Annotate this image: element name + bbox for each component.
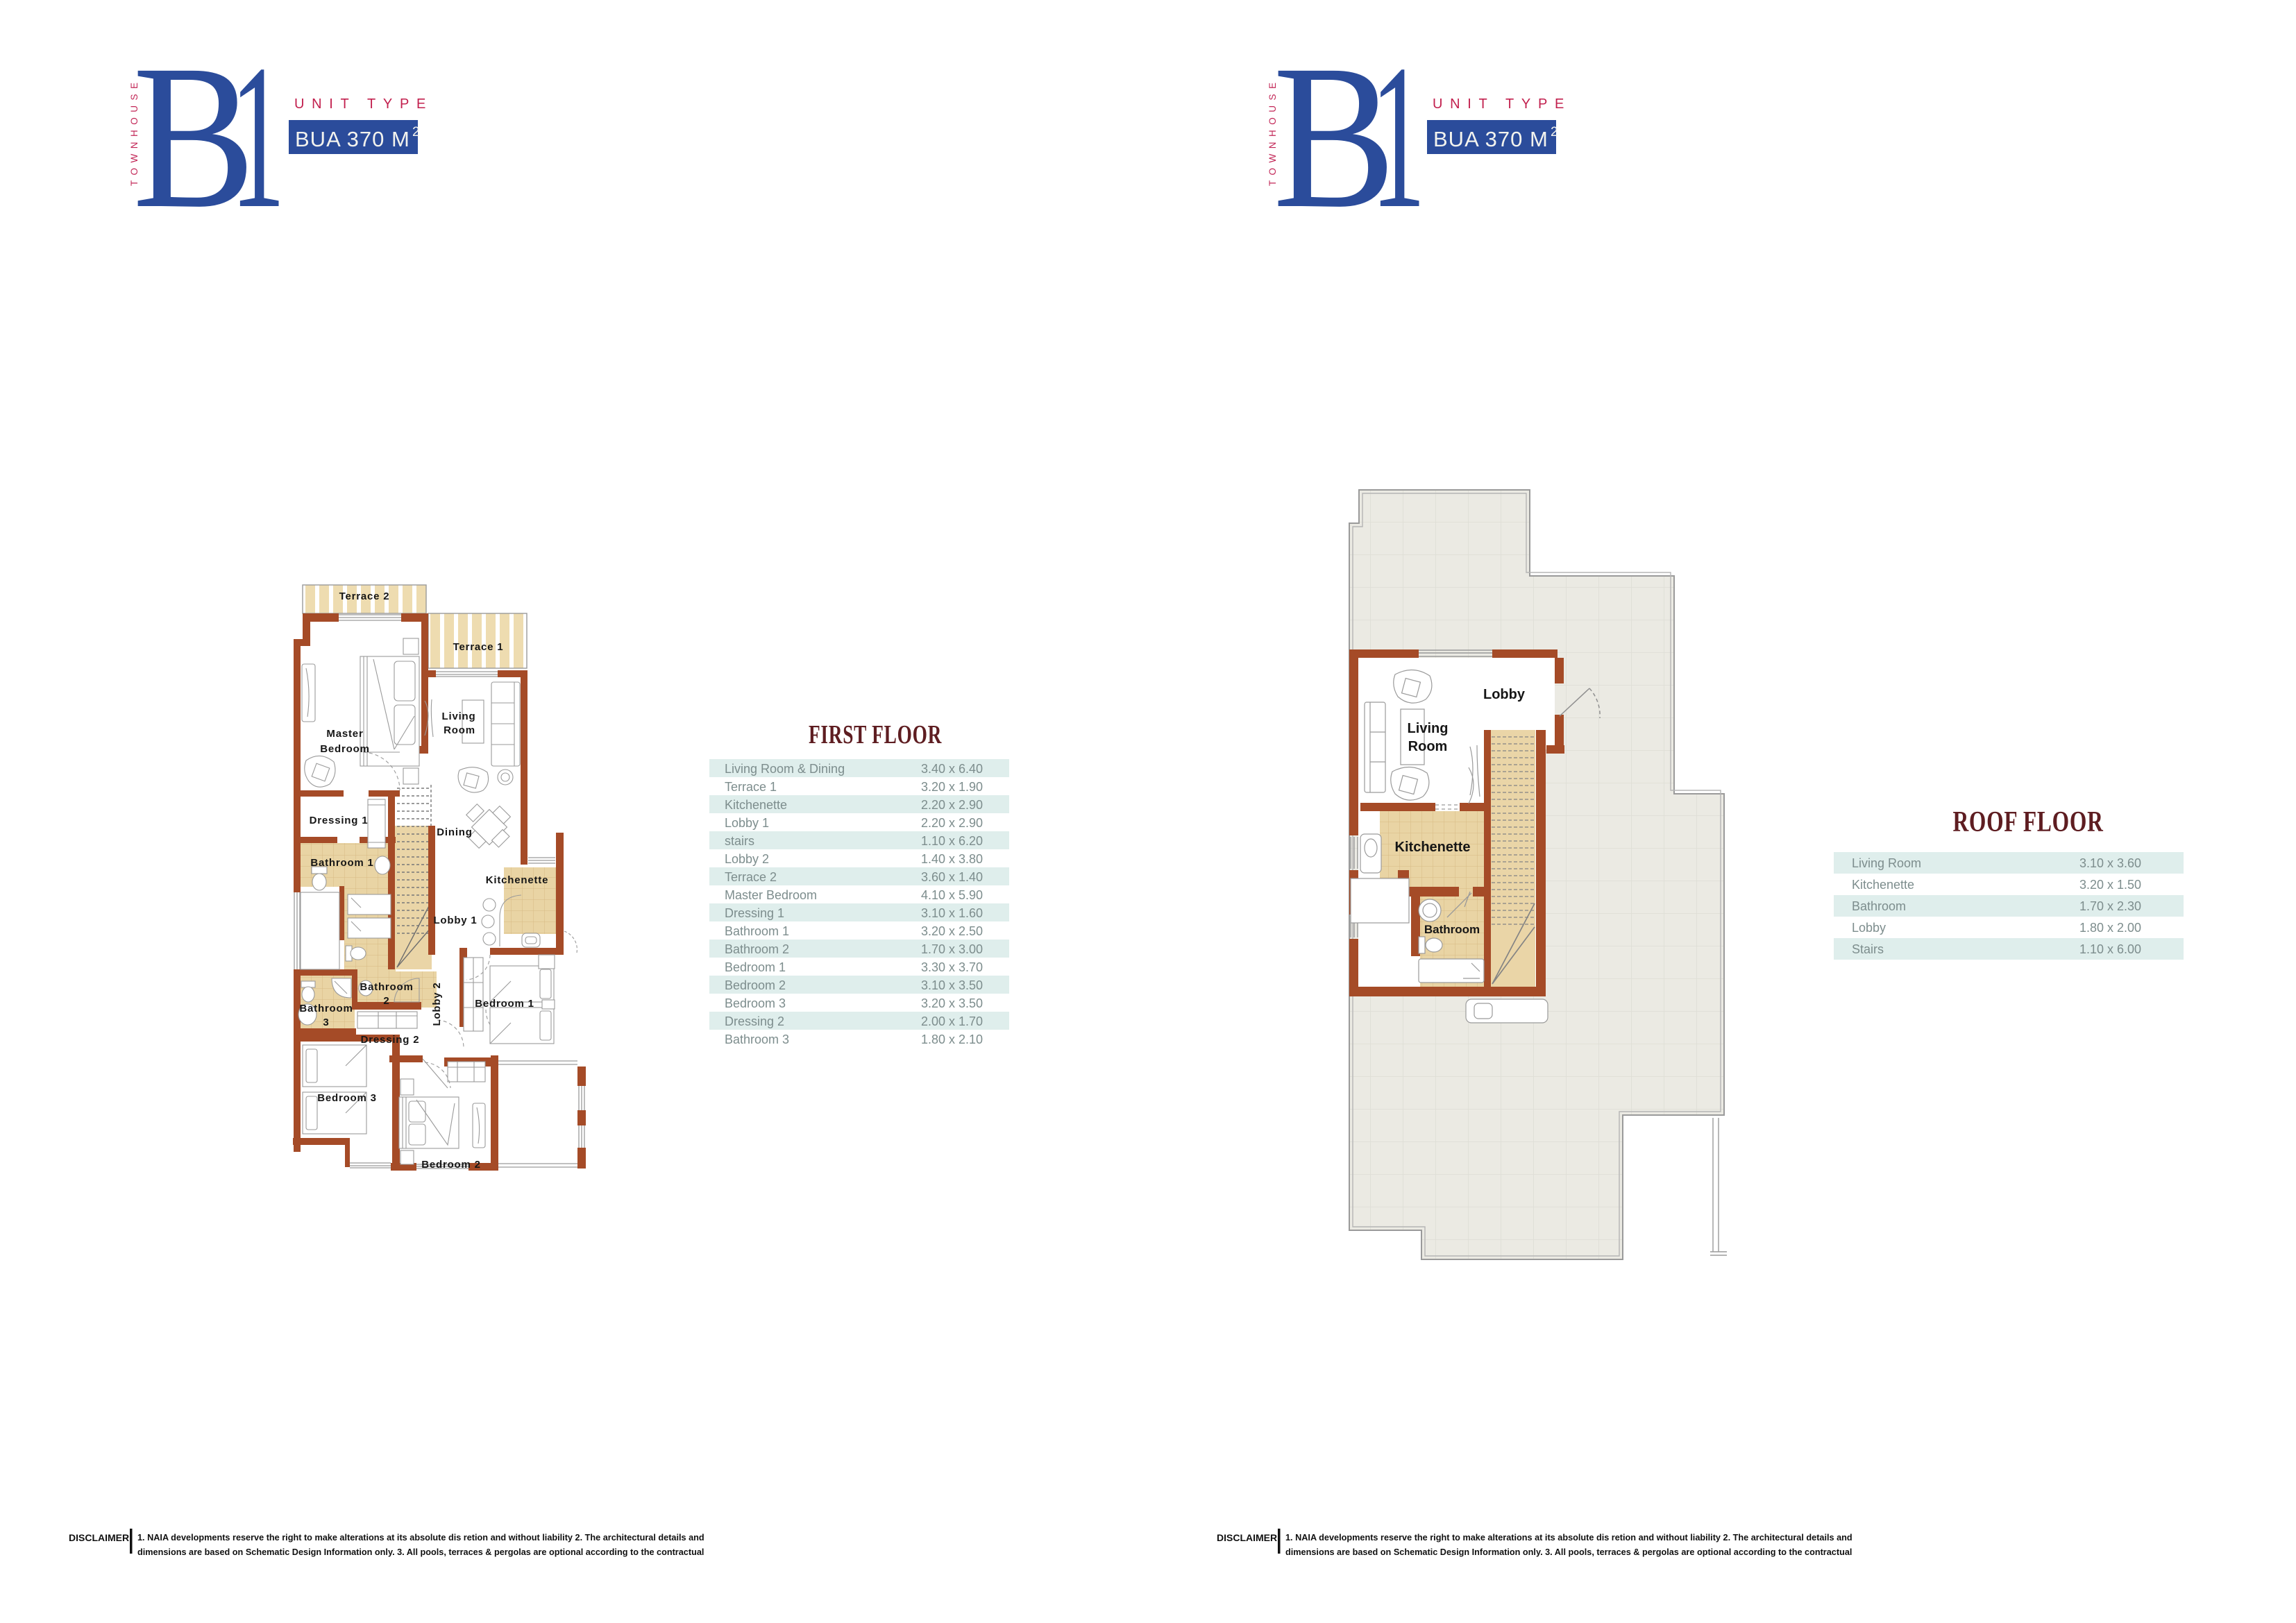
svg-text:Bathroom: Bathroom	[299, 1003, 353, 1014]
svg-text:ROOF FLOOR: ROOF FLOOR	[1952, 806, 2103, 838]
svg-text:3.20 x 2.50: 3.20 x 2.50	[921, 924, 983, 938]
svg-text:Bathroom: Bathroom	[360, 981, 413, 993]
svg-text:Lobby: Lobby	[1852, 921, 1886, 935]
svg-text:Bathroom 3: Bathroom 3	[725, 1033, 789, 1046]
svg-text:1.40 x 3.80: 1.40 x 3.80	[921, 852, 983, 866]
svg-text:BUA 370 M: BUA 370 M	[1433, 127, 1548, 151]
svg-text:Terrace 2: Terrace 2	[339, 590, 390, 602]
svg-text:DISCLAIMER: DISCLAIMER	[1217, 1532, 1277, 1543]
svg-text:1.10 x 6.00: 1.10 x 6.00	[2079, 942, 2141, 956]
svg-text:Room: Room	[444, 724, 475, 736]
svg-text:Bathroom 2: Bathroom 2	[725, 942, 789, 956]
svg-text:Dressing 1: Dressing 1	[310, 815, 369, 826]
svg-text:Living Room: Living Room	[1852, 856, 1921, 870]
svg-text:3.40 x 6.40: 3.40 x 6.40	[921, 762, 983, 776]
svg-text:Dressing 2: Dressing 2	[361, 1034, 420, 1046]
svg-text:2.20 x 2.90: 2.20 x 2.90	[921, 816, 983, 830]
svg-text:2.20 x 2.90: 2.20 x 2.90	[921, 798, 983, 812]
svg-text:Dressing 1: Dressing 1	[725, 906, 784, 920]
svg-text:2: 2	[383, 995, 389, 1007]
svg-text:1. NAIA developments reserve t: 1. NAIA developments reserve the right t…	[137, 1533, 704, 1543]
svg-text:1.80 x 2.10: 1.80 x 2.10	[921, 1033, 983, 1046]
svg-text:3.60 x 1.40: 3.60 x 1.40	[921, 870, 983, 884]
svg-text:1.70 x 3.00: 1.70 x 3.00	[921, 942, 983, 956]
svg-text:Bathroom 1: Bathroom 1	[725, 924, 789, 938]
svg-text:Master: Master	[326, 728, 363, 740]
svg-text:3.10 x 1.60: 3.10 x 1.60	[921, 906, 983, 920]
svg-text:dimensions are based on Schema: dimensions are based on Schematic Design…	[137, 1547, 704, 1557]
svg-text:Kitchenette: Kitchenette	[725, 798, 787, 812]
svg-text:3.10 x 3.60: 3.10 x 3.60	[2079, 856, 2141, 870]
svg-text:2.00 x 1.70: 2.00 x 1.70	[921, 1014, 983, 1028]
svg-text:Lobby 1: Lobby 1	[725, 816, 769, 830]
svg-text:Bathroom: Bathroom	[1852, 899, 1906, 913]
svg-text:FIRST FLOOR: FIRST FLOOR	[809, 720, 942, 749]
svg-text:Living: Living	[442, 711, 476, 722]
svg-text:Bedroom 2: Bedroom 2	[725, 978, 786, 992]
svg-text:Bedroom 3: Bedroom 3	[317, 1092, 377, 1104]
svg-text:1.70 x 2.30: 1.70 x 2.30	[2079, 899, 2141, 913]
svg-text:Terrace 1: Terrace 1	[453, 641, 504, 653]
svg-text:Bathroom: Bathroom	[1424, 923, 1480, 936]
svg-text:3.20 x 3.50: 3.20 x 3.50	[921, 996, 983, 1010]
svg-text:Lobby: Lobby	[1483, 687, 1526, 702]
svg-text:Master Bedroom: Master Bedroom	[725, 888, 817, 902]
svg-text:Living: Living	[1408, 721, 1449, 736]
svg-text:2: 2	[1551, 125, 1558, 139]
svg-text:Bedroom 1: Bedroom 1	[725, 960, 786, 974]
svg-text:Terrace 1: Terrace 1	[725, 780, 777, 794]
svg-text:Bedroom: Bedroom	[320, 743, 369, 755]
svg-text:Room: Room	[1408, 739, 1448, 754]
svg-text:Kitchenette: Kitchenette	[1395, 840, 1471, 855]
svg-text:1.10 x 6.20: 1.10 x 6.20	[921, 834, 983, 848]
svg-text:dimensions are based on Schema: dimensions are based on Schematic Design…	[1285, 1547, 1852, 1557]
svg-text:1.80 x 2.00: 1.80 x 2.00	[2079, 921, 2141, 935]
svg-text:Stairs: Stairs	[1852, 942, 1884, 956]
svg-text:3: 3	[323, 1017, 329, 1028]
svg-text:BUA 370 M: BUA 370 M	[295, 127, 410, 151]
svg-text:Dressing 2: Dressing 2	[725, 1014, 784, 1028]
svg-text:Lobby 2: Lobby 2	[431, 982, 443, 1026]
svg-text:UNIT TYPE: UNIT TYPE	[1433, 96, 1571, 112]
svg-text:1. NAIA developments reserve t: 1. NAIA developments reserve the right t…	[1285, 1533, 1852, 1543]
svg-text:Terrace 2: Terrace 2	[725, 870, 777, 884]
svg-text:Lobby 1: Lobby 1	[433, 915, 477, 926]
svg-text:DISCLAIMER: DISCLAIMER	[69, 1532, 129, 1543]
svg-text:2: 2	[412, 125, 420, 139]
svg-text:3.20 x 1.90: 3.20 x 1.90	[921, 780, 983, 794]
svg-text:Bathroom 1: Bathroom 1	[310, 857, 373, 869]
svg-text:Kitchenette: Kitchenette	[1852, 878, 1914, 892]
svg-text:1: 1	[1371, 22, 1426, 251]
svg-text:stairs: stairs	[725, 834, 754, 848]
svg-text:3.20 x 1.50: 3.20 x 1.50	[2079, 878, 2141, 892]
svg-text:4.10 x 5.90: 4.10 x 5.90	[921, 888, 983, 902]
svg-text:Bedroom 3: Bedroom 3	[725, 996, 786, 1010]
svg-text:3.10 x 3.50: 3.10 x 3.50	[921, 978, 983, 992]
svg-text:Living Room & Dining: Living Room & Dining	[725, 762, 845, 776]
svg-text:Dining: Dining	[437, 826, 472, 838]
svg-text:UNIT TYPE: UNIT TYPE	[294, 96, 433, 112]
svg-text:Lobby 2: Lobby 2	[725, 852, 769, 866]
svg-text:Bedroom 2: Bedroom 2	[421, 1159, 481, 1171]
svg-text:3.30 x 3.70: 3.30 x 3.70	[921, 960, 983, 974]
svg-text:1: 1	[230, 22, 285, 251]
svg-text:Kitchenette: Kitchenette	[486, 874, 548, 886]
svg-text:Bedroom 1: Bedroom 1	[475, 998, 534, 1010]
